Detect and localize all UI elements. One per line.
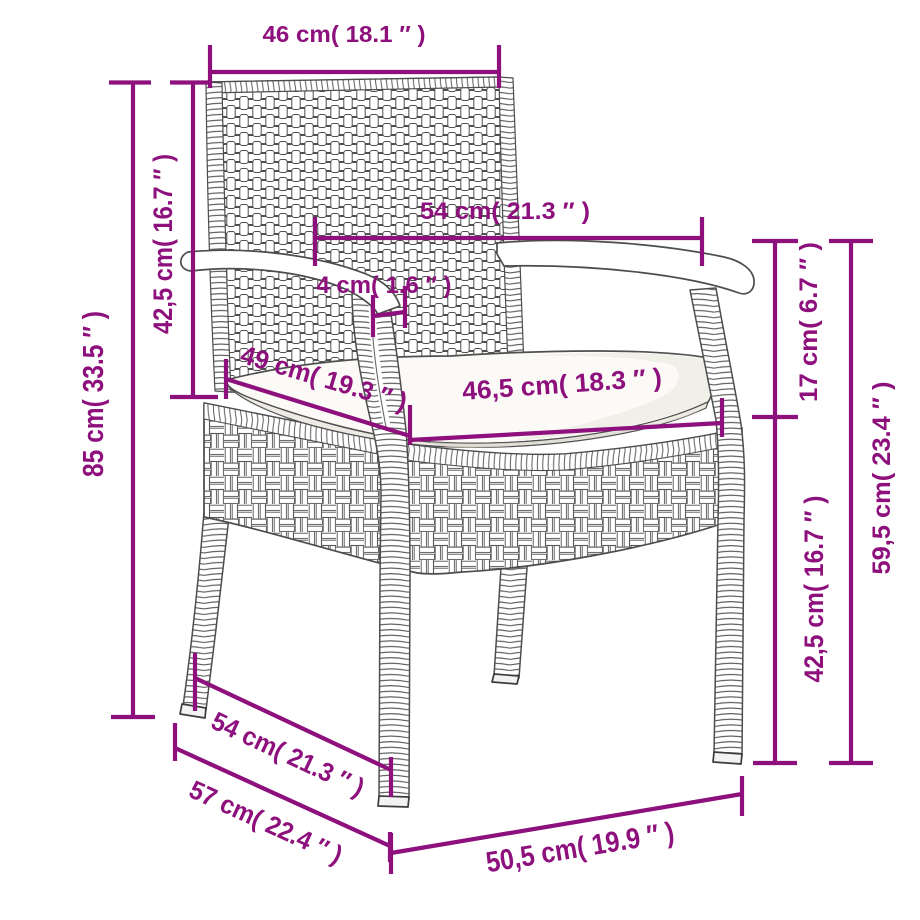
svg-text:59,5 cm( 23.4 ″ ): 59,5 cm( 23.4 ″ ): [868, 382, 896, 575]
svg-text:4 cm( 1.6 ″ ): 4 cm( 1.6 ″ ): [317, 272, 452, 299]
svg-text:17 cm( 6.7 ″ ): 17 cm( 6.7 ″ ): [795, 242, 823, 402]
svg-text:42,5 cm( 16.7 ″ ): 42,5 cm( 16.7 ″ ): [148, 154, 178, 334]
svg-text:46 cm( 18.1 ″ ): 46 cm( 18.1 ″ ): [263, 21, 426, 47]
svg-text:54 cm( 21.3 ″ ): 54 cm( 21.3 ″ ): [420, 198, 590, 225]
svg-text:85 cm( 33.5 ″ ): 85 cm( 33.5 ″ ): [78, 311, 110, 477]
svg-text:50,5 cm( 19.9 ″ ): 50,5 cm( 19.9 ″ ): [484, 817, 677, 880]
svg-text:42,5 cm( 16.7 ″ ): 42,5 cm( 16.7 ″ ): [799, 496, 829, 683]
